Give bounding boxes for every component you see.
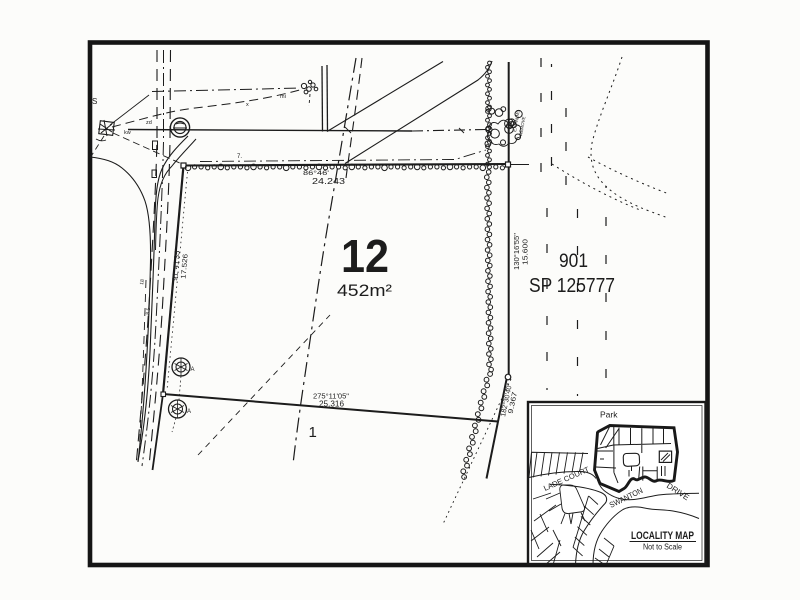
svg-text:A: A <box>191 367 195 373</box>
svg-text:x: x <box>246 102 249 108</box>
svg-text:mi: mi <box>280 94 286 100</box>
svg-text:7.: 7. <box>237 154 242 160</box>
svg-text:A: A <box>187 409 191 415</box>
svg-text:24.243: 24.243 <box>312 176 345 186</box>
svg-text:25.316: 25.316 <box>319 400 345 409</box>
svg-text:1: 1 <box>309 424 317 441</box>
svg-text:12: 12 <box>341 230 389 282</box>
svg-text:SP 125777: SP 125777 <box>529 275 615 297</box>
svg-text:kw: kw <box>124 130 131 136</box>
svg-text:15.600: 15.600 <box>521 239 530 265</box>
svg-text:zd: zd <box>146 120 152 126</box>
svg-text:452m²: 452m² <box>337 282 393 300</box>
svg-text:Park: Park <box>600 410 618 420</box>
svg-text:Not to Scale: Not to Scale <box>643 543 682 552</box>
svg-text:S: S <box>92 97 97 106</box>
svg-text:8.5: 8.5 <box>145 307 152 315</box>
svg-text:LOCALITY MAP: LOCALITY MAP <box>631 530 694 542</box>
svg-text:901: 901 <box>559 251 588 272</box>
